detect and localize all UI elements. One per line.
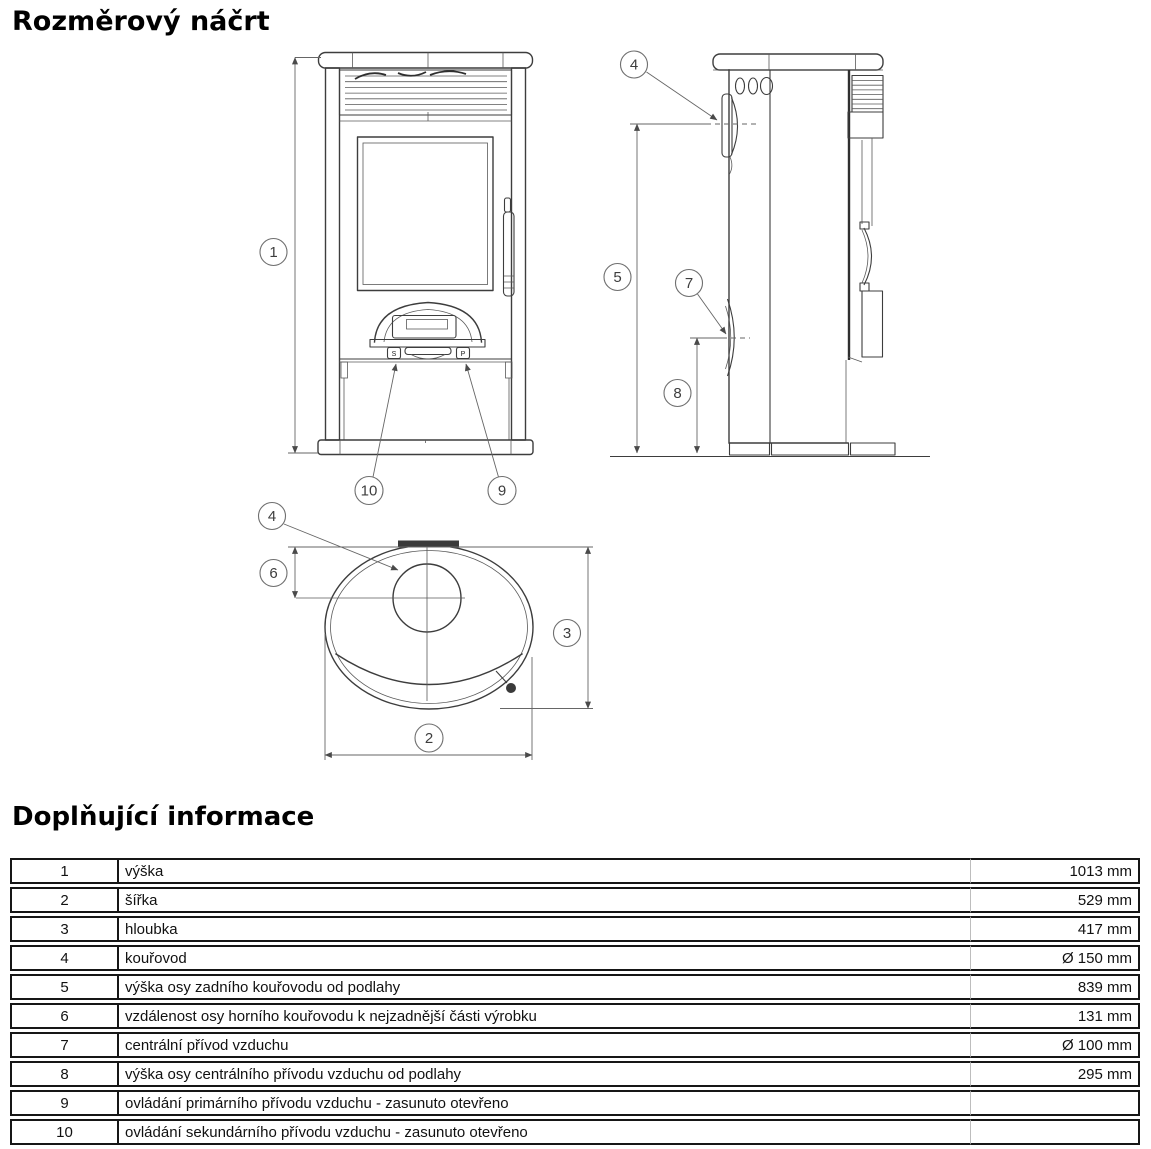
row-number: 6 [10, 1003, 119, 1029]
callout-7: 7 [676, 270, 727, 335]
callout-1: 1 [260, 239, 287, 266]
row-value: 295 mm [971, 1061, 1140, 1087]
svg-text:6: 6 [269, 565, 277, 582]
dimension-height [288, 58, 321, 454]
top-view [288, 541, 593, 710]
callout-4-top: 4 [259, 503, 399, 571]
svg-text:4: 4 [630, 57, 638, 74]
row-value [971, 1119, 1140, 1145]
row-number: 8 [10, 1061, 119, 1087]
row-description: vzdálenost osy horního kouřovodu k nejza… [119, 1003, 971, 1029]
row-description: výška osy zadního kouřovodu od podlahy [119, 974, 971, 1000]
svg-text:1: 1 [269, 244, 277, 261]
row-value: 529 mm [971, 887, 1140, 913]
dimensional-drawing: S P 1 10 9 [0, 0, 1151, 790]
dimension-air-inlet-height [690, 338, 750, 453]
row-value [971, 1090, 1140, 1116]
row-number: 3 [10, 916, 119, 942]
row-number: 10 [10, 1119, 119, 1145]
row-description: výška [119, 858, 971, 884]
table-row: 5 výška osy zadního kouřovodu od podlahy… [10, 974, 1140, 1000]
front-view: S P [318, 53, 533, 455]
svg-text:7: 7 [685, 275, 693, 292]
svg-text:9: 9 [498, 483, 506, 500]
datasheet-page: { "page": { "title1": "Rozměrový náčrt",… [0, 0, 1151, 1149]
section-title: Doplňující informace [12, 802, 314, 832]
table-row: 9 ovládání primárního přívodu vzduchu - … [10, 1090, 1140, 1116]
callout-5: 5 [604, 264, 631, 291]
table-row: 7 centrální přívod vzduchu Ø 100 mm [10, 1032, 1140, 1058]
row-number: 2 [10, 887, 119, 913]
row-value: Ø 100 mm [971, 1032, 1140, 1058]
callout-3: 3 [554, 620, 581, 647]
side-view [610, 54, 930, 457]
row-number: 1 [10, 858, 119, 884]
svg-text:8: 8 [673, 385, 681, 402]
row-number: 4 [10, 945, 119, 971]
svg-text:4: 4 [268, 508, 276, 525]
row-value: 131 mm [971, 1003, 1140, 1029]
door-knob [506, 683, 516, 693]
row-value: 417 mm [971, 916, 1140, 942]
primary-air-tab-label: P [461, 351, 466, 358]
svg-text:2: 2 [425, 730, 433, 747]
svg-text:3: 3 [563, 625, 571, 642]
row-number: 5 [10, 974, 119, 1000]
table-row: 4 kouřovod Ø 150 mm [10, 945, 1140, 971]
row-description: centrální přívod vzduchu [119, 1032, 971, 1058]
callout-6: 6 [260, 560, 287, 587]
table-row: 6 vzdálenost osy horního kouřovodu k nej… [10, 1003, 1140, 1029]
row-description: ovládání primárního přívodu vzduchu - za… [119, 1090, 971, 1116]
callout-10: 10 [355, 364, 396, 505]
row-value: 1013 mm [971, 858, 1140, 884]
row-description: ovládání sekundárního přívodu vzduchu - … [119, 1119, 971, 1145]
callout-9: 9 [466, 364, 516, 505]
top-tab [398, 541, 459, 547]
table-row: 1 výška 1013 mm [10, 858, 1140, 884]
row-number: 9 [10, 1090, 119, 1116]
row-value: 839 mm [971, 974, 1140, 1000]
row-description: výška osy centrálního přívodu vzduchu od… [119, 1061, 971, 1087]
callout-2: 2 [415, 724, 443, 752]
table-row: 3 hloubka 417 mm [10, 916, 1140, 942]
svg-text:5: 5 [613, 269, 621, 286]
svg-text:10: 10 [361, 483, 378, 500]
row-number: 7 [10, 1032, 119, 1058]
table-row: 10 ovládání sekundárního přívodu vzduchu… [10, 1119, 1140, 1145]
row-value: Ø 150 mm [971, 945, 1140, 971]
row-description: kouřovod [119, 945, 971, 971]
row-description: šířka [119, 887, 971, 913]
secondary-air-tab-label: S [392, 351, 397, 358]
table-row: 2 šířka 529 mm [10, 887, 1140, 913]
table-row: 8 výška osy centrálního přívodu vzduchu … [10, 1061, 1140, 1087]
row-description: hloubka [119, 916, 971, 942]
info-table: 1 výška 1013 mm 2 šířka 529 mm 3 hloubka… [10, 855, 1140, 1148]
callout-8: 8 [664, 380, 691, 407]
callout-4-side: 4 [621, 51, 718, 120]
